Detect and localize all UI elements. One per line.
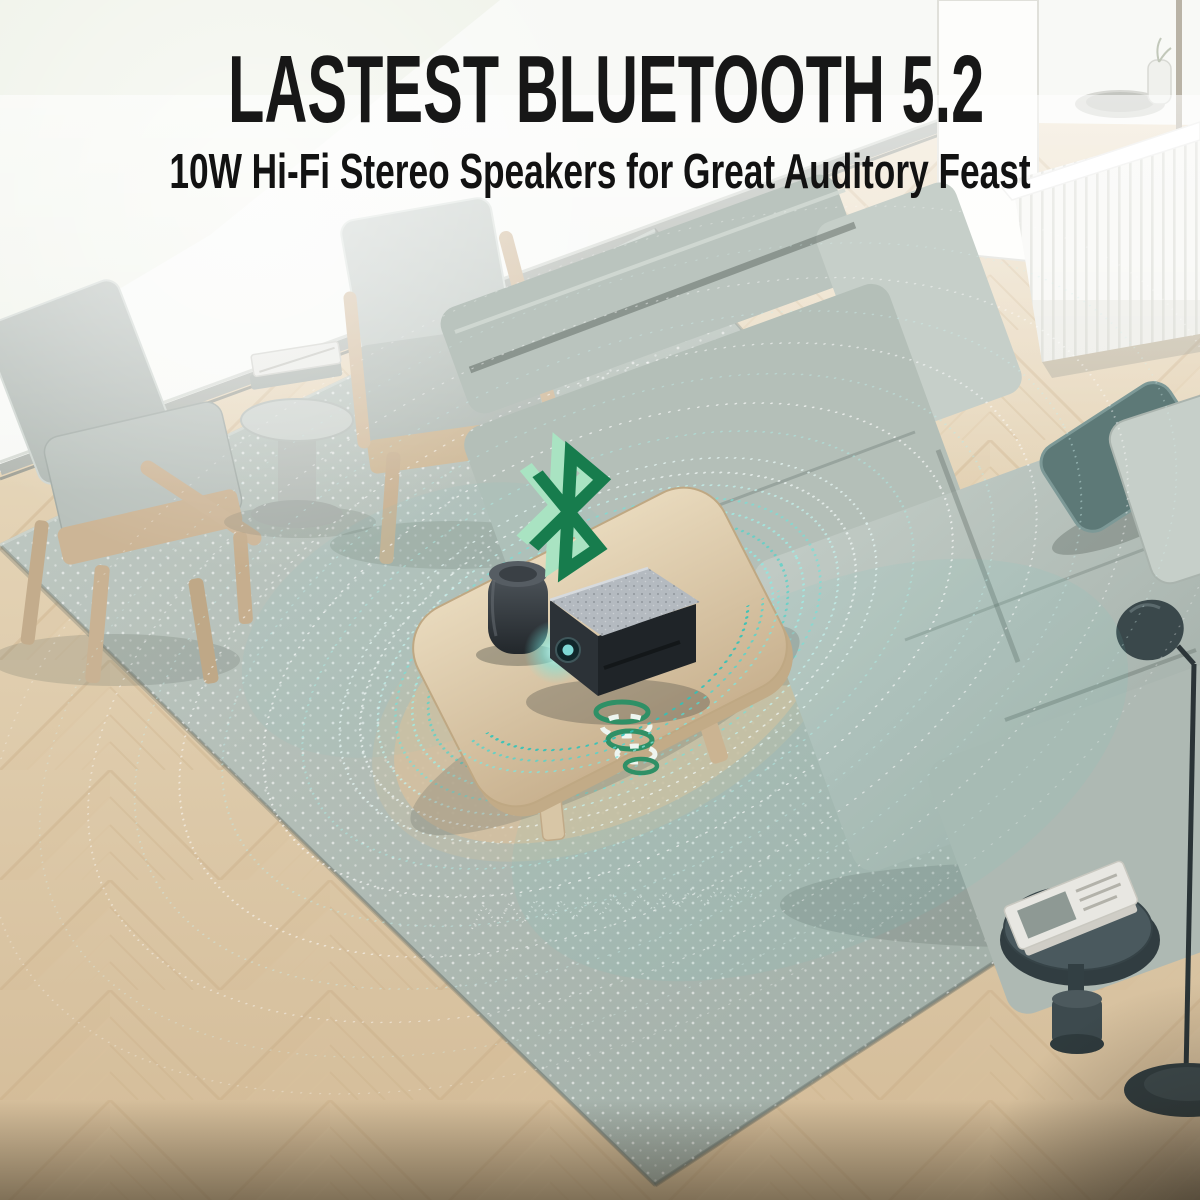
product-hero-banner: LASTEST BLUETOOTH 5.2 10W Hi-Fi Stereo S…: [0, 0, 1200, 1200]
living-room-scene: [0, 0, 1200, 1200]
